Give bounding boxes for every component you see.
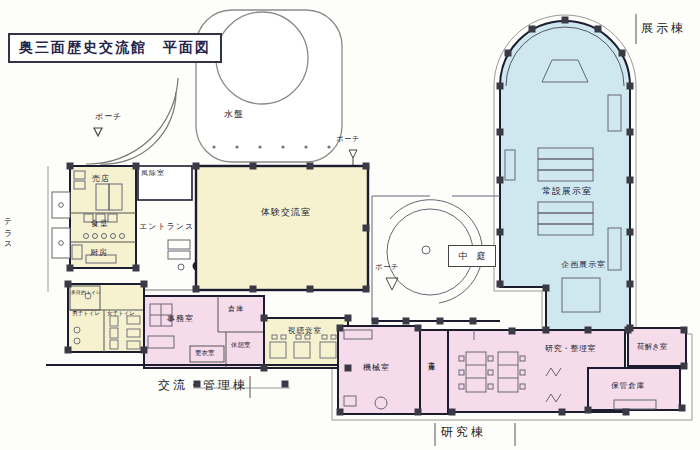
- room-label-terrace: テラス: [3, 213, 11, 246]
- room-label-unpacking: 荷解き室: [637, 343, 667, 351]
- room-label-permanent-exhibition: 常設展示室: [542, 187, 592, 196]
- room-label-mens-toilet: 男子トイレ: [72, 311, 100, 317]
- room-label-office: 事務室: [167, 315, 194, 323]
- wing-label-exhibition: 展示棟: [641, 22, 686, 34]
- room-label-shop: 売店: [92, 175, 110, 183]
- room-label-rest-room: 休憩室: [231, 342, 251, 349]
- porch-nw-arcs: [86, 78, 178, 164]
- room-label-experience: 体験交流室: [261, 208, 311, 217]
- room-label-dining: 食堂: [91, 220, 109, 228]
- room-label-av-room: 視聴覚室: [288, 327, 322, 335]
- room-label-planned-exhibition: 企画展示室: [561, 261, 606, 269]
- room-label-accessible-toilet: 多目的トイレ: [71, 290, 101, 295]
- wing-label-management: 交流・管理棟: [158, 379, 248, 391]
- room-label-machine-room: 機械室: [363, 364, 390, 372]
- room-label-research-sorting: 研究・整理室: [545, 345, 596, 353]
- exhibition-wing-shape: [500, 21, 630, 330]
- room-label-courtyard-box: 中 庭: [448, 245, 496, 267]
- room-label-porch-court: ポーチ: [375, 264, 399, 271]
- experience-room-shape: [196, 166, 368, 290]
- stacks-shape: [420, 330, 448, 414]
- terrace-shapes: [52, 192, 70, 258]
- porch-court-mark: [386, 278, 398, 290]
- entrance-fixtures: [168, 240, 190, 270]
- wing-label-research: 研究棟: [441, 426, 486, 438]
- room-label-stacks: 書庫: [427, 356, 434, 360]
- plan-title: 奥三面歴史交流館 平面図: [8, 33, 222, 63]
- room-label-vestibule: 風除室: [141, 170, 165, 177]
- floor-plan: 奥三面歴史交流館 平面図 展示棟 交流・管理棟 研究棟 水盤 ポーチ ポーチ ポ…: [0, 0, 700, 450]
- room-label-womens-toilet: 女子トイレ: [107, 311, 135, 317]
- room-label-water-basin: 水盤: [224, 110, 244, 119]
- room-label-kitchen: 厨房: [90, 249, 108, 257]
- room-label-changing-room: 更衣室: [195, 350, 215, 357]
- room-label-porch-nw: ポーチ: [95, 113, 122, 121]
- room-label-courtyard: 中 庭: [459, 250, 486, 263]
- room-label-porch-mid: ポーチ: [336, 136, 360, 143]
- room-label-storage-warehouse: 保管倉庫: [611, 382, 645, 390]
- porch-mid-mark: [349, 150, 357, 165]
- room-label-storeroom: 倉庫: [228, 306, 244, 313]
- room-label-entrance: エントランス: [139, 223, 194, 231]
